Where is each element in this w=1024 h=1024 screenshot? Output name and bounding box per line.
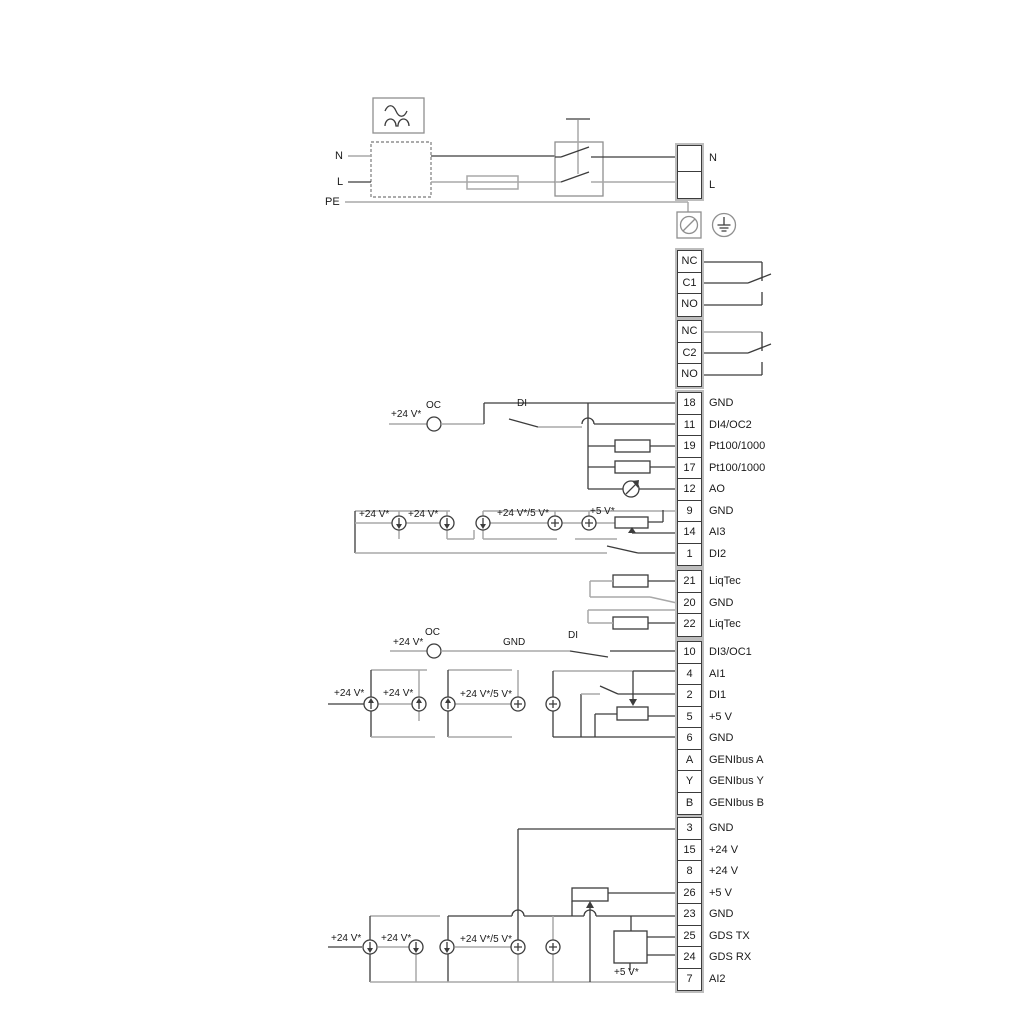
terminal-strip-power-io: 3 15 8 26 23 25 24 7 [677,817,702,991]
terminal-cell: 14 [678,522,701,544]
terminal-cell: 6 [678,728,701,750]
terminal-label: +5 V [709,707,764,729]
emc-filter-box [371,142,431,197]
terminal-label: GENIbus B [709,793,764,815]
terminal-cell: 7 [678,969,701,991]
terminal-label: AI2 [709,969,751,991]
terminal-cell: 3 [678,818,701,840]
terminal-label: AI3 [709,522,765,544]
terminal-strip-main-labels: GND DI4/OC2 Pt100/1000 Pt100/1000 AO GND… [709,393,765,565]
terminal-label: DI1 [709,685,764,707]
terminal-label: GND [709,593,741,615]
open-collector-icon-di3 [427,644,441,658]
relay1-no: NO [678,294,701,316]
terminal-label-n: N [709,145,717,172]
switch-icon-di2 [355,546,677,553]
terminal-cell-n [678,146,701,172]
label-24v-5v: +24 V*/5 V* [460,689,512,700]
label-24v: +24 V* [331,933,361,944]
earth-symbol-icon [713,214,736,237]
resistor-icon-liqtec-21 [613,575,648,587]
terminal-label: DI3/OC1 [709,642,764,664]
pe-screw-terminal-icon [677,212,701,238]
main-switch-icon [555,119,603,196]
terminal-strip-power-io-labels: GND +24 V +24 V +5 V GND GDS TX GDS RX A… [709,818,751,990]
terminal-strip-liqtec: 21 20 22 [677,570,702,637]
wiring-diagram: N L NC C1 NO NC C2 NO 18 11 19 17 12 9 1… [0,0,1024,1024]
open-collector-icon-di4 [427,417,441,431]
terminal-label: LiqTec [709,571,741,593]
terminal-cell: 9 [678,501,701,523]
terminal-label: Pt100/1000 [709,436,765,458]
terminal-cell-l [678,172,701,198]
resistor-icon-pt100-19 [615,440,650,452]
terminal-cell: 5 [678,707,701,729]
label-neutral: N [335,150,343,162]
terminal-strip-io: 10 4 2 5 6 A Y B [677,641,702,815]
terminal-cell: 1 [678,544,701,566]
terminal-cell: 2 [678,685,701,707]
terminal-label: +24 V [709,861,751,883]
terminal-label: DI2 [709,544,765,566]
relay2-contact-icon [702,332,771,375]
terminal-cell: 11 [678,415,701,437]
terminal-label: GENIbus A [709,750,764,772]
terminal-cell: 8 [678,861,701,883]
label-line: L [337,176,343,188]
terminal-cell: 25 [678,926,701,948]
fuse-icon [467,176,518,189]
terminal-cell: 20 [678,593,701,615]
terminal-cell: 4 [678,664,701,686]
label-24v: +24 V* [334,688,364,699]
terminal-cell: Y [678,771,701,793]
terminal-label: GND [709,904,751,926]
label-24v: +24 V* [393,637,423,648]
terminal-cell: 12 [678,479,701,501]
terminal-label: DI4/OC2 [709,415,765,437]
power-terminal-labels: N L [709,145,717,199]
switch-icon-di3 [570,651,677,657]
label-24v: +24 V* [383,688,413,699]
label-pe: PE [325,196,340,208]
terminal-strip-liqtec-labels: LiqTec GND LiqTec [709,571,741,636]
analog-output-meter-icon [623,480,639,497]
relay2-terminal-block: NC C2 NO [677,320,702,387]
resistor-icon-liqtec-22 [613,617,648,629]
terminal-cell: 18 [678,393,701,415]
terminal-label: AI1 [709,664,764,686]
label-oc: OC [425,627,440,638]
label-5v: +5 V* [590,506,615,517]
terminal-label: LiqTec [709,614,741,636]
terminal-cell: B [678,793,701,815]
terminal-label-l: L [709,172,717,199]
terminal-cell: 17 [678,458,701,480]
terminal-cell: 26 [678,883,701,905]
label-24v: +24 V* [359,509,389,520]
terminal-label: GDS TX [709,926,751,948]
terminal-cell: 10 [678,642,701,664]
label-di: DI [517,398,527,409]
terminal-cell: 19 [678,436,701,458]
label-24v: +24 V* [381,933,411,944]
potentiometer-icon-ai3 [615,517,648,533]
terminal-label: GND [709,393,765,415]
terminal-label: GND [709,728,764,750]
label-24v-5v: +24 V*/5 V* [497,508,549,519]
terminal-cell: 15 [678,840,701,862]
terminal-label: AO [709,479,765,501]
relay2-nc: NC [678,321,701,343]
terminal-label: GENIbus Y [709,771,764,793]
potentiometer-icon-ai1 [617,707,648,720]
label-24v-5v: +24 V*/5 V* [460,934,512,945]
terminal-label: +5 V [709,883,751,905]
terminal-strip-main: 18 11 19 17 12 9 14 1 [677,392,702,566]
terminal-cell: A [678,750,701,772]
label-gnd: GND [503,637,525,648]
relay1-nc: NC [678,251,701,273]
relay1-terminal-block: NC C1 NO [677,250,702,317]
power-terminal-block [677,145,702,199]
terminal-cell: 21 [678,571,701,593]
terminal-label: GND [709,501,765,523]
label-5v: +5 V* [614,967,639,978]
relay1-contact-icon [702,262,771,305]
label-di: DI [568,630,578,641]
terminal-cell: 24 [678,947,701,969]
terminal-strip-io-labels: DI3/OC1 AI1 DI1 +5 V GND GENIbus A GENIb… [709,642,764,814]
gds-module-box [614,931,647,963]
relay2-c2: C2 [678,343,701,365]
terminal-label: Pt100/1000 [709,458,765,480]
terminal-label: +24 V [709,840,751,862]
resistor-icon-pt100-17 [615,461,650,473]
power-converter-icon [373,98,424,133]
label-24v: +24 V* [408,509,438,520]
terminal-cell: 23 [678,904,701,926]
terminal-cell: 22 [678,614,701,636]
potentiometer-icon-ai2 [572,888,608,908]
terminal-label: GND [709,818,751,840]
terminal-label: GDS RX [709,947,751,969]
relay1-c1: C1 [678,273,701,295]
label-oc: OC [426,400,441,411]
relay2-no: NO [678,364,701,386]
switch-icon-di4 [509,419,582,427]
label-24v: +24 V* [391,409,421,420]
